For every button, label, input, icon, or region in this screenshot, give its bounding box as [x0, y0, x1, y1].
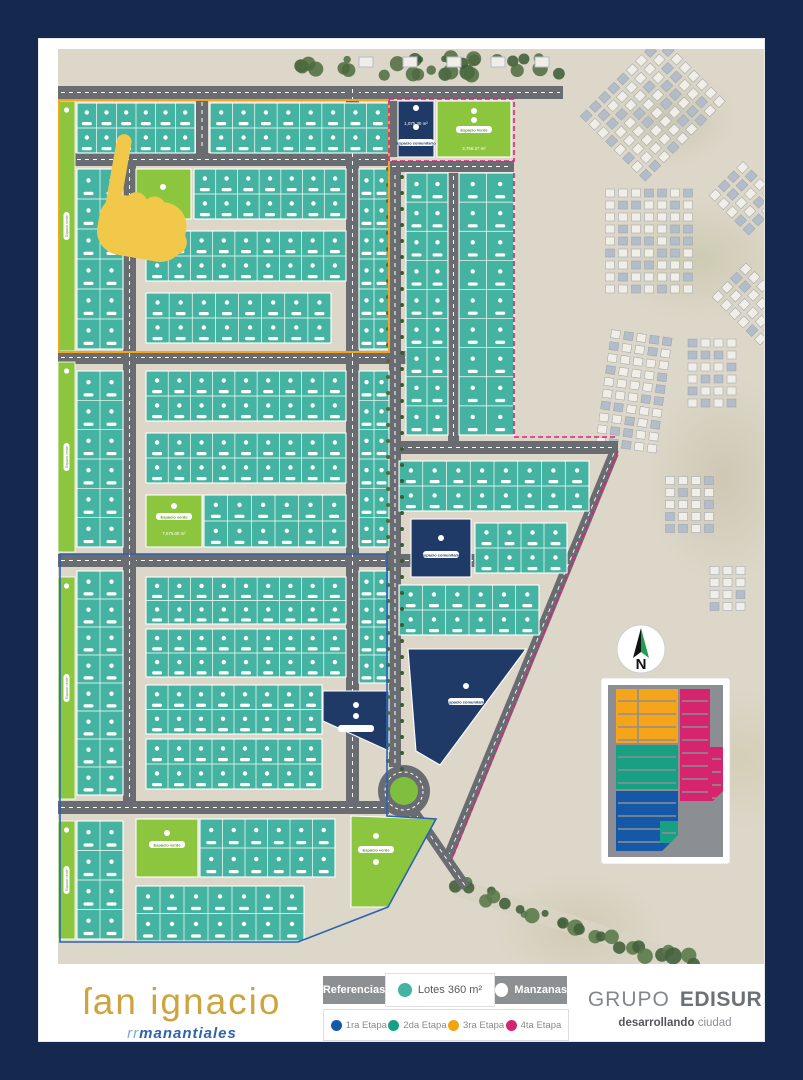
lot-block[interactable]	[200, 819, 335, 877]
lotes-label: Lotes 360 m²	[418, 984, 482, 996]
svg-text:Espacio verde: Espacio verde	[362, 848, 390, 853]
manzanas-label: Manzanas	[514, 984, 567, 996]
svg-text:Espacio Verde: Espacio Verde	[460, 128, 488, 133]
greenway-trees	[449, 877, 700, 964]
lot-block[interactable]	[146, 629, 346, 677]
lot-block[interactable]	[194, 169, 346, 219]
tagline-light: ciudad	[698, 1017, 732, 1029]
svg-text:Espacio verde: Espacio verde	[65, 869, 69, 891]
legend-header-row: Referencias Lotes 360 m² Manzanas	[323, 973, 569, 1007]
lotes-toggle[interactable]: Lotes 360 m²	[385, 973, 495, 1007]
project-logo: ſan ignacio rrmanantiales	[67, 981, 297, 1042]
lot-block[interactable]	[77, 371, 123, 547]
lot-block[interactable]	[77, 571, 123, 795]
lot-block[interactable]	[204, 495, 346, 547]
company-logo-row: GRUPO EDISUR	[595, 987, 755, 1013]
svg-text:Espacio verde: Espacio verde	[65, 446, 69, 468]
espacio-verde-parcel[interactable]: Espacio verde	[136, 819, 198, 877]
espacio-comunitario-parcel[interactable]: Espacio comunitario1,075.30 m²	[396, 101, 436, 157]
manzanas-toggle[interactable]: Manzanas	[495, 976, 567, 1004]
construction-cluster	[688, 339, 736, 407]
lot-block[interactable]	[475, 523, 567, 573]
manantiales-label: manantiales	[139, 1025, 237, 1042]
svg-text:Espacio comunitario: Espacio comunitario	[396, 141, 436, 146]
project-name: ſan ignacio	[67, 981, 297, 1023]
etapa-item-1: 1ra Etapa	[331, 1020, 387, 1031]
etapa2-dot-icon	[388, 1020, 399, 1031]
poster: { "branding": { "project_name": "ſan ign…	[0, 0, 803, 1080]
etapa-item-2: 2da Etapa	[388, 1020, 446, 1031]
construction-cluster	[606, 189, 693, 293]
etapa4-outline	[514, 173, 615, 437]
etapa-item-4: 4ta Etapa	[506, 1020, 562, 1031]
manzana-dot-icon	[495, 983, 508, 997]
construction-cluster	[709, 162, 764, 236]
lot-block[interactable]	[399, 461, 589, 511]
compass-n-label: N	[636, 656, 647, 673]
masterplan-svg[interactable]: Espacio verdeEspacio verdeEspacio verdeE…	[58, 49, 764, 964]
lot-block[interactable]	[210, 103, 389, 153]
etapa3-label: 3ra Etapa	[463, 1020, 504, 1031]
espacio-verde-parcel[interactable]: Espacio Verde3,758.27 m²	[437, 101, 511, 157]
lot-block[interactable]	[77, 821, 123, 939]
roundabout	[378, 765, 430, 817]
etapas-legend: 1ra Etapa 2da Etapa 3ra Etapa 4ta Etapa	[323, 1009, 569, 1041]
poster-page: Espacio verdeEspacio verdeEspacio verdeE…	[38, 38, 765, 1042]
svg-text:Espacio verde: Espacio verde	[160, 515, 188, 520]
stage-inset-minimap	[601, 678, 730, 864]
lot-block[interactable]	[136, 886, 304, 941]
project-subbrand: rrmanantiales	[67, 1025, 297, 1042]
construction-cluster	[712, 263, 764, 345]
construction-cluster	[580, 49, 725, 181]
svg-text:Espacio verde: Espacio verde	[153, 843, 181, 848]
etapa3-dot-icon	[448, 1020, 459, 1031]
etapa-item-3: 3ra Etapa	[448, 1020, 504, 1031]
construction-cluster	[710, 567, 745, 611]
espacio-verde-strip: Espacio verde	[58, 362, 75, 552]
grupo-label: GRUPO	[588, 988, 670, 1012]
masterplan-map: Espacio verdeEspacio verdeEspacio verdeE…	[58, 49, 764, 964]
manantiales-mark: rr	[127, 1025, 139, 1042]
compass: N	[617, 625, 665, 673]
svg-text:Espacio comunitario: Espacio comunitario	[421, 553, 461, 558]
lote-dot-icon	[398, 983, 412, 997]
svg-text:Espacio comunitario: Espacio comunitario	[446, 700, 486, 705]
lot-block[interactable]	[146, 293, 331, 343]
etapa1-label: 1ra Etapa	[346, 1020, 387, 1031]
svg-text:Espacio verde: Espacio verde	[65, 677, 69, 699]
lot-block[interactable]	[146, 433, 346, 483]
espacio-verde-parcel[interactable]: Espacio verde7,675.00 m²	[146, 495, 202, 547]
company-tagline: desarrollando ciudad	[595, 1017, 755, 1029]
lot-block[interactable]	[399, 585, 539, 635]
legend: Referencias Lotes 360 m² Manzanas 1ra Et…	[323, 973, 569, 1041]
referencias-button[interactable]: Referencias	[323, 976, 385, 1004]
svg-text:7,675.00 m²: 7,675.00 m²	[162, 531, 186, 536]
construction-cluster	[596, 330, 673, 453]
etapa4-label: 4ta Etapa	[521, 1020, 562, 1031]
lot-block[interactable]	[406, 173, 448, 435]
company-logo: GRUPO EDISUR desarrollando ciudad	[595, 987, 755, 1029]
lot-block[interactable]	[77, 103, 195, 153]
lot-block[interactable]	[146, 685, 322, 734]
tree-strip	[294, 50, 564, 82]
lot-block[interactable]	[359, 371, 389, 547]
svg-text:1,075.30 m²: 1,075.30 m²	[404, 121, 428, 126]
tagline-bold: desarrollando	[618, 1017, 694, 1029]
svg-text:Espacio verde: Espacio verde	[65, 215, 69, 237]
construction-cluster	[666, 477, 714, 533]
edisur-label: EDISUR	[680, 988, 762, 1012]
lot-block[interactable]	[359, 571, 389, 683]
espacio-comunitario-parcel[interactable]: Espacio comunitario	[411, 519, 471, 577]
espacio-verde-parcel[interactable]: Espacio verde	[351, 816, 436, 907]
lot-block[interactable]	[459, 173, 514, 435]
etapa2-label: 2da Etapa	[403, 1020, 446, 1031]
etapa1-dot-icon	[331, 1020, 342, 1031]
lot-block[interactable]	[359, 169, 389, 349]
svg-text:3,758.27 m²: 3,758.27 m²	[462, 146, 486, 151]
etapa4-dot-icon	[506, 1020, 517, 1031]
lot-block[interactable]	[146, 577, 346, 624]
lot-block[interactable]	[146, 739, 322, 789]
espacio-verde-strip: Espacio verde	[58, 101, 75, 351]
lot-block[interactable]	[146, 371, 346, 421]
